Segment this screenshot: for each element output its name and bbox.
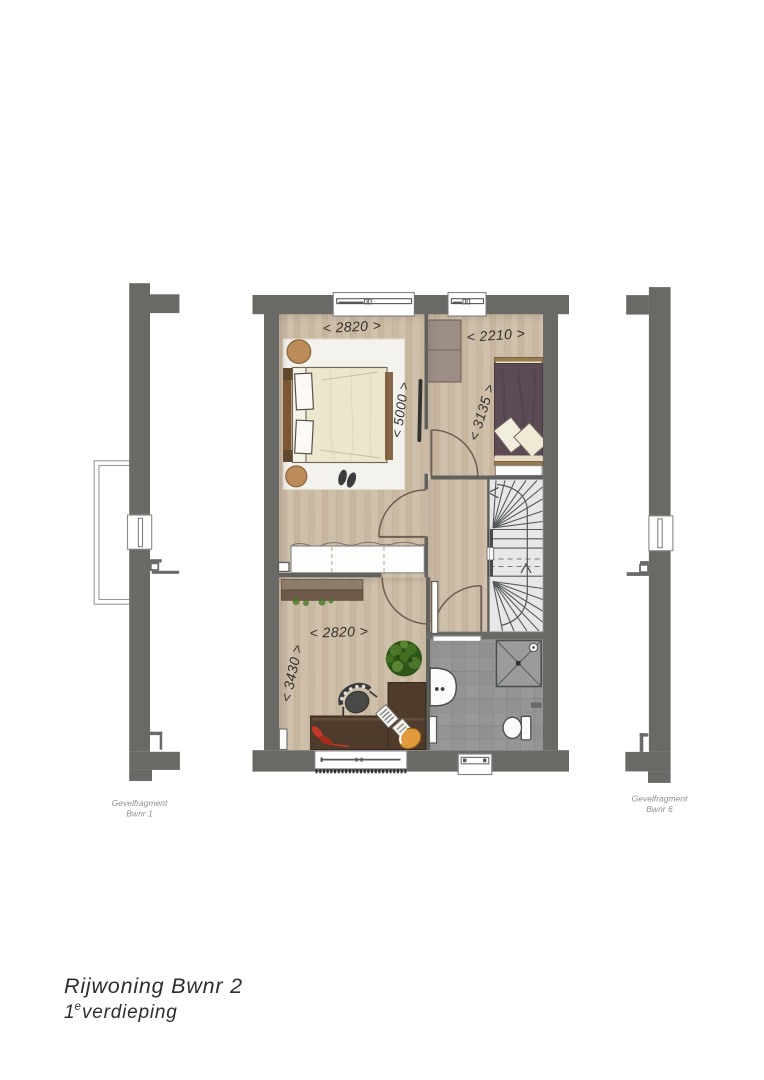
- svg-text:verdieping: verdieping: [82, 1002, 178, 1023]
- svg-text:Gevelfragment: Gevelfragment: [112, 798, 168, 808]
- svg-text:Rijwoning Bwnr 2: Rijwoning Bwnr 2: [64, 974, 243, 998]
- svg-text:< 2820 >: < 2820 >: [322, 317, 381, 336]
- svg-text:Gevelfragment: Gevelfragment: [632, 794, 688, 804]
- svg-text:< 2820 >: < 2820 >: [309, 623, 368, 641]
- svg-text:Bwnr 1: Bwnr 1: [126, 809, 153, 819]
- svg-text:Bwnr 6: Bwnr 6: [646, 804, 673, 814]
- svg-text:e: e: [75, 1001, 81, 1013]
